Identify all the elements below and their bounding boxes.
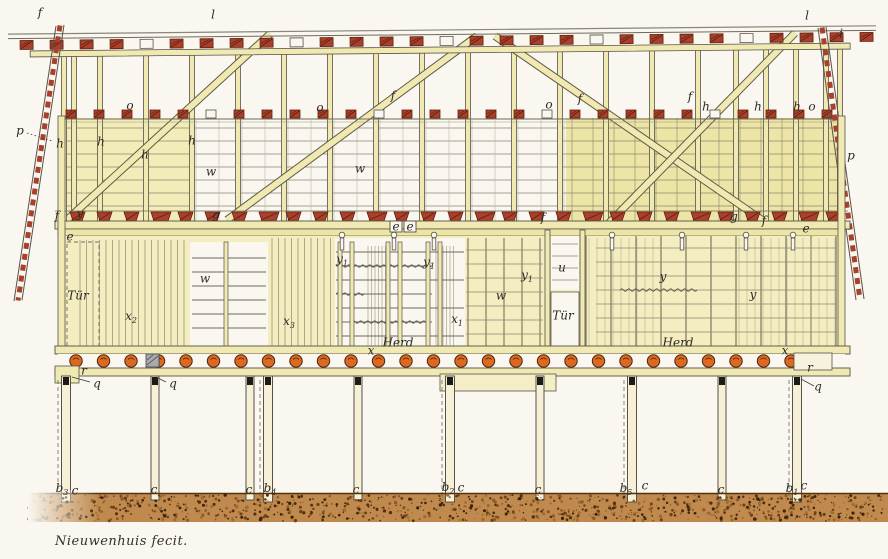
- ground-speckle: [597, 506, 599, 508]
- wall-stud: [794, 48, 799, 222]
- ground-speckle: [383, 509, 386, 512]
- ground-speckle: [173, 496, 175, 498]
- tenon-mark: [537, 377, 543, 385]
- ground-speckle: [362, 512, 364, 514]
- ground-speckle: [164, 509, 167, 512]
- room-post: [426, 242, 430, 350]
- ground-speckle: [244, 516, 247, 519]
- ground-speckle: [255, 503, 257, 505]
- main-stilt-post: [62, 376, 71, 502]
- q-leader: [801, 379, 814, 386]
- ground-speckle: [511, 494, 513, 496]
- ground-speckle: [726, 507, 729, 510]
- room-post: [338, 242, 342, 350]
- ground-speckle: [716, 510, 719, 513]
- ground-speckle: [756, 497, 759, 500]
- ground-speckle: [870, 503, 871, 504]
- e-box: [404, 221, 416, 232]
- ground-speckle: [613, 502, 616, 505]
- ground-speckle: [595, 513, 598, 516]
- ground-speckle: [553, 519, 556, 522]
- ground-speckle: [542, 512, 545, 515]
- ground-speckle: [127, 503, 129, 505]
- ground-speckle: [352, 496, 353, 497]
- ground-speckle: [669, 513, 672, 516]
- ground-speckle: [563, 510, 565, 512]
- ground-speckle: [401, 510, 402, 511]
- ground-speckle: [130, 513, 132, 515]
- ground-speckle: [202, 504, 205, 507]
- ground-speckle: [753, 509, 755, 511]
- ground-speckle: [685, 496, 686, 497]
- ground-speckle: [806, 514, 808, 516]
- ground-speckle: [292, 504, 293, 505]
- ground-speckle: [542, 512, 543, 513]
- ground-speckle: [568, 509, 570, 511]
- ground-speckle: [663, 506, 666, 509]
- room-post: [398, 242, 402, 350]
- ground-speckle: [807, 505, 810, 508]
- ground-speckle: [779, 518, 782, 521]
- ground-speckle: [119, 504, 121, 506]
- ground-speckle: [848, 497, 850, 499]
- ground-speckle: [201, 514, 204, 517]
- tenon-mark: [247, 377, 253, 385]
- ground-speckle: [396, 511, 398, 513]
- ground-speckle: [882, 500, 883, 501]
- ground-speckle: [408, 498, 411, 501]
- ground-speckle: [736, 498, 739, 501]
- ground-speckle: [449, 515, 452, 518]
- ground-speckle: [217, 514, 219, 516]
- ground-speckle: [788, 509, 790, 511]
- ground-speckle: [329, 495, 331, 497]
- ground-speckle: [762, 501, 765, 504]
- ground-speckle: [381, 507, 382, 508]
- ground-speckle: [809, 500, 812, 503]
- ground-speckle: [790, 511, 793, 514]
- ground-speckle: [804, 514, 805, 515]
- ground-speckle: [560, 509, 563, 512]
- ground-speckle: [813, 507, 816, 510]
- ground-speckle: [552, 514, 555, 517]
- ground-speckle: [302, 502, 303, 503]
- ground-speckle: [496, 504, 498, 506]
- ground-speckle: [628, 501, 630, 503]
- ground-speckle: [294, 519, 297, 522]
- ground-speckle: [674, 496, 677, 499]
- main-stilt-post: [793, 376, 802, 502]
- ground-speckle: [808, 494, 811, 497]
- ground-speckle: [834, 496, 836, 498]
- ground-speckle: [457, 494, 460, 497]
- ground-speckle: [322, 515, 325, 518]
- ground-speckle: [530, 503, 533, 506]
- ground-speckle: [452, 517, 455, 520]
- ground-speckle: [871, 515, 872, 516]
- ground-speckle: [828, 519, 830, 521]
- ground-speckle: [585, 510, 587, 512]
- ground-speckle: [777, 511, 779, 513]
- ground-speckle: [734, 517, 737, 520]
- roof-assembly: [8, 26, 876, 57]
- ground-speckle: [356, 512, 359, 515]
- ground-speckle: [184, 509, 186, 511]
- ground-speckle: [837, 515, 840, 518]
- ground-speckle: [128, 510, 129, 511]
- ground-speckle: [536, 509, 538, 511]
- ground-speckle: [127, 505, 128, 506]
- ground-speckle: [438, 495, 440, 497]
- ground-speckle: [267, 508, 270, 511]
- ground-speckle: [695, 499, 698, 502]
- ground-speckle: [182, 511, 183, 512]
- ground-speckle: [687, 519, 689, 521]
- ground-speckle: [660, 518, 663, 521]
- ground-speckle: [616, 494, 619, 497]
- baluster-stem: [392, 238, 396, 250]
- ground-speckle: [748, 511, 751, 514]
- ground-speckle: [152, 509, 153, 510]
- floor-joist-section: [372, 355, 384, 367]
- ground-speckle: [880, 512, 882, 514]
- ground-speckle: [215, 519, 217, 521]
- wall-stud: [98, 55, 103, 222]
- ground-speckle: [389, 511, 392, 514]
- ground-speckle: [670, 504, 671, 505]
- ground-speckle: [536, 501, 539, 504]
- ground-speckle: [346, 517, 349, 520]
- ground-speckle: [730, 503, 733, 506]
- ground-speckle: [404, 512, 405, 513]
- ground-speckle: [235, 516, 236, 517]
- ground-speckle: [185, 495, 187, 497]
- ground-speckle: [388, 508, 389, 509]
- ground-speckle: [455, 508, 457, 510]
- ground-speckle: [855, 504, 857, 506]
- ground-speckle: [246, 510, 248, 512]
- ground-speckle: [510, 506, 512, 508]
- ground-speckle: [412, 519, 415, 522]
- ground-speckle: [479, 506, 480, 507]
- ground-speckle: [768, 514, 770, 516]
- ground-speckle: [794, 498, 795, 499]
- ground-speckle: [316, 503, 319, 506]
- door-opening: [551, 292, 579, 350]
- ground-speckle: [382, 507, 384, 509]
- ground-speckle: [439, 500, 440, 501]
- ground-speckle: [115, 507, 118, 510]
- ground-speckle: [254, 509, 256, 511]
- ground-speckle: [267, 516, 269, 518]
- ground-speckle: [247, 518, 249, 520]
- ground-speckle: [194, 507, 196, 509]
- ground-speckle: [642, 506, 643, 507]
- ground-speckle: [209, 495, 210, 496]
- ground-speckle: [419, 518, 421, 520]
- ground-speckle: [880, 497, 881, 498]
- ground-speckle: [694, 512, 697, 515]
- ground-speckle: [309, 499, 311, 501]
- ground-speckle: [241, 500, 243, 502]
- ground-speckle: [854, 507, 855, 508]
- ground-speckle: [785, 494, 788, 497]
- e-box: [390, 221, 402, 232]
- rafter-gap: [590, 35, 603, 44]
- ground-speckle: [665, 496, 666, 497]
- ground-speckle: [832, 502, 834, 504]
- ground-speckle: [234, 504, 236, 506]
- ground-speckle: [185, 517, 186, 518]
- ground-speckle: [446, 493, 449, 496]
- corner-post: [58, 116, 65, 352]
- floor-joist-section: [510, 355, 522, 367]
- ground-speckle: [120, 497, 123, 500]
- ground-speckle: [610, 509, 612, 511]
- gallery-post: [224, 242, 228, 346]
- ground-speckle: [373, 507, 375, 509]
- ground-speckle: [869, 500, 870, 501]
- ground-speckle: [714, 511, 716, 513]
- ground-speckle: [614, 505, 617, 508]
- ground-speckle: [711, 514, 712, 515]
- ground-speckle: [664, 511, 666, 513]
- floor-joist-section: [207, 355, 219, 367]
- ground-speckle: [238, 511, 239, 512]
- ground-speckle: [214, 498, 217, 501]
- ground-speckle: [839, 507, 840, 508]
- ground-speckle: [589, 494, 592, 497]
- wall-stud: [328, 53, 333, 222]
- ground-speckle: [331, 503, 332, 504]
- ground-speckle: [689, 507, 691, 509]
- ground-speckle: [557, 508, 559, 510]
- ground-speckle: [495, 516, 497, 518]
- ground-speckle: [407, 509, 410, 512]
- ground-speckle: [550, 502, 552, 504]
- ground-speckle: [512, 510, 515, 513]
- ground-speckle: [257, 498, 260, 501]
- ground-speckle: [872, 505, 874, 507]
- ground-speckle: [475, 495, 477, 497]
- ground-speckle: [208, 513, 210, 515]
- ground-speckle: [851, 517, 853, 519]
- floor-joist-section: [675, 355, 687, 367]
- ground-speckle: [657, 498, 660, 501]
- ground-speckle: [298, 496, 301, 499]
- ground-speckle: [161, 517, 164, 520]
- ground-speckle: [731, 497, 733, 499]
- beam-end-right: [794, 353, 832, 370]
- ground-speckle: [762, 496, 763, 497]
- ground-speckle: [352, 518, 354, 520]
- ground-speckle: [364, 499, 366, 501]
- ground-speckle: [770, 497, 773, 500]
- ground-speckle: [576, 498, 577, 499]
- ground-speckle: [814, 513, 817, 516]
- ground-speckle: [625, 502, 627, 504]
- ground-speckle: [358, 508, 361, 511]
- ground-speckle: [232, 509, 235, 512]
- ground-speckle: [259, 501, 261, 503]
- turned-baluster: [790, 232, 796, 238]
- tenon-mark: [794, 377, 800, 385]
- ground-speckle: [184, 503, 186, 505]
- wall-stud: [190, 54, 195, 222]
- ground-speckle: [859, 505, 862, 508]
- ground-speckle: [767, 499, 769, 501]
- ground-speckle: [469, 498, 471, 500]
- ground-speckle: [731, 518, 734, 521]
- ground-speckle: [187, 513, 188, 514]
- floor-joist-section: [290, 355, 302, 367]
- shingles: [18, 26, 60, 301]
- ground-speckle: [386, 494, 388, 496]
- ground-speckle: [424, 502, 427, 505]
- ground-speckle: [807, 500, 809, 502]
- ground-speckle: [204, 500, 207, 503]
- ground-speckle: [631, 514, 633, 516]
- rafter-gap: [140, 39, 153, 48]
- ground-speckle: [226, 507, 228, 509]
- ground-speckle: [522, 504, 523, 505]
- ground-speckle: [845, 517, 846, 518]
- ground-speckle: [716, 517, 718, 519]
- ground-speckle: [290, 516, 293, 519]
- ground-speckle: [240, 516, 243, 519]
- ground-speckle: [864, 502, 867, 505]
- ground-speckle: [243, 509, 245, 511]
- ground-speckle: [355, 499, 358, 502]
- ground-speckle: [231, 518, 234, 521]
- ground-speckle: [136, 500, 139, 503]
- ground-speckle: [482, 514, 483, 515]
- ground-speckle: [630, 510, 631, 511]
- ground-speckle: [872, 509, 875, 512]
- ground-speckle: [688, 503, 691, 506]
- ground-speckle: [465, 506, 466, 507]
- ground-speckle: [652, 520, 653, 521]
- ground-speckle: [629, 517, 630, 518]
- ground-speckle: [500, 496, 503, 499]
- ground-speckle: [421, 502, 423, 504]
- ground-speckle: [848, 500, 850, 502]
- ground-speckle: [505, 512, 508, 515]
- ground-speckle: [566, 518, 569, 521]
- ground-speckle: [649, 505, 650, 506]
- ground-speckle: [221, 510, 223, 512]
- ground-speckle: [819, 515, 820, 516]
- ground-speckle: [720, 517, 723, 520]
- baluster-stem: [744, 238, 748, 250]
- ground-speckle: [160, 507, 161, 508]
- ground-speckle: [291, 495, 294, 498]
- ground-speckle: [259, 518, 262, 521]
- floor-joist-section: [345, 355, 357, 367]
- wall-stud: [512, 51, 517, 222]
- ground-speckle: [375, 507, 376, 508]
- turned-baluster: [743, 232, 749, 238]
- ground-speckle: [213, 503, 216, 506]
- ground-speckle: [559, 495, 561, 497]
- floor-stilt-post: [718, 376, 726, 500]
- ground-speckle: [402, 506, 405, 509]
- ground-speckle: [492, 515, 494, 517]
- ground-speckle: [108, 519, 111, 522]
- ground-speckle: [242, 500, 244, 502]
- ground-speckle: [408, 519, 410, 521]
- ground-speckle: [281, 503, 283, 505]
- ground-speckle: [439, 503, 442, 506]
- ground-speckle: [492, 499, 495, 502]
- ground-speckle: [195, 494, 197, 496]
- ground-speckle: [608, 507, 610, 509]
- ground-speckle: [407, 516, 409, 518]
- ground-speckle: [319, 513, 321, 515]
- ground-speckle: [512, 519, 513, 520]
- purlin-gap: [206, 110, 216, 118]
- ground-speckle: [267, 500, 268, 501]
- ground-speckle: [120, 495, 121, 496]
- baluster-stem: [610, 238, 614, 250]
- ground-speckle: [880, 499, 882, 501]
- ground-speckle: [148, 504, 151, 507]
- ground-speckle: [274, 505, 277, 508]
- ground-speckle: [481, 499, 484, 502]
- ground-speckle: [731, 501, 732, 502]
- ground-speckle: [105, 495, 108, 498]
- ground-speckle: [772, 507, 775, 510]
- ground-speckle: [675, 511, 676, 512]
- ground-speckle: [650, 502, 653, 505]
- ground-speckle: [542, 499, 544, 501]
- ground-speckle: [423, 515, 426, 518]
- ground-speckle: [779, 517, 780, 518]
- ground-speckle: [204, 509, 207, 512]
- ground-speckle: [715, 506, 718, 509]
- ground-speckle: [748, 501, 751, 504]
- ground-speckle: [866, 512, 869, 515]
- ground-speckle: [264, 507, 267, 510]
- ground-speckle: [605, 510, 607, 512]
- ground-speckle: [777, 497, 779, 499]
- ground-speckle: [505, 501, 507, 503]
- ground-speckle: [537, 495, 538, 496]
- ground-speckle: [806, 517, 807, 518]
- floor-stilt-post: [354, 376, 362, 500]
- ground-speckle: [790, 498, 792, 500]
- floor-stilt-post: [536, 376, 544, 500]
- tenon-mark: [265, 377, 271, 385]
- ground-speckle: [483, 502, 485, 504]
- ground-speckle: [521, 518, 523, 520]
- ground-speckle: [753, 498, 755, 500]
- ground-speckle: [643, 516, 645, 518]
- ground-speckle: [465, 520, 466, 521]
- ground-speckle: [381, 496, 383, 498]
- ground-speckle: [469, 507, 471, 509]
- ground-speckle: [371, 502, 372, 503]
- ground-speckle: [129, 504, 132, 507]
- ground-speckle: [611, 513, 613, 515]
- ground-speckle: [687, 496, 689, 498]
- ground-speckle: [525, 503, 527, 505]
- ground-speckle: [697, 516, 698, 517]
- ground-speckle: [507, 504, 510, 507]
- ground-speckle: [713, 514, 715, 516]
- ground-speckle: [881, 495, 882, 496]
- wall-stud: [282, 53, 287, 222]
